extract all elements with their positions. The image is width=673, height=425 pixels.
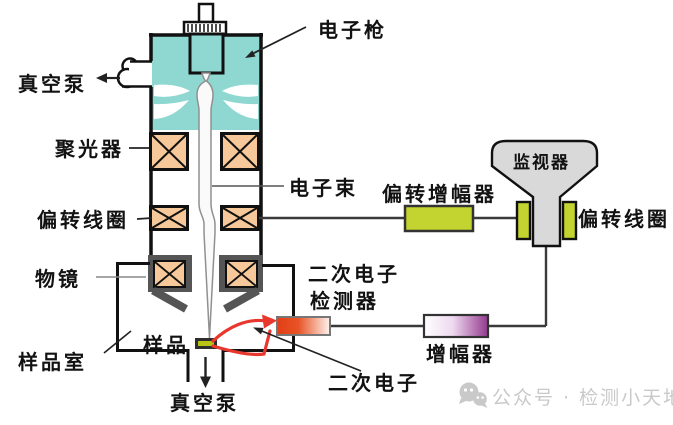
signal-wires xyxy=(259,218,546,326)
label-monitor: 监视器 xyxy=(513,152,570,173)
se-detector-box xyxy=(277,317,330,335)
sem-schematic-diagram: 电子枪 真空泵 聚光器 电子束 偏转线圈 物镜 样品 样品室 真空泵 二次电子 … xyxy=(0,0,673,425)
gun-connector xyxy=(184,22,226,34)
watermark: 公众号 · 检测小天地 xyxy=(459,383,673,410)
deflection-coil-leader xyxy=(137,218,152,219)
leader-lines xyxy=(96,148,284,353)
label-condenser: 聚光器 xyxy=(54,137,124,161)
red-arrowhead xyxy=(262,315,277,329)
pole-piece-left xyxy=(153,291,186,310)
crt-coil-left xyxy=(517,202,530,239)
label-deflection-coil-left: 偏转线圈 xyxy=(37,208,129,232)
label-se-detector-line2: 检测器 xyxy=(310,289,379,313)
cathode xyxy=(190,34,223,73)
watermark-text: 公众号 · 检测小天地 xyxy=(492,387,673,409)
label-electron-gun: 电子枪 xyxy=(318,18,387,42)
label-sample: 样品 xyxy=(143,333,189,357)
pipe-body xyxy=(129,62,152,86)
label-se-detector-line1: 二次电子 xyxy=(308,262,400,286)
amplifier-box xyxy=(424,315,488,337)
label-sample-chamber: 样品室 xyxy=(18,350,87,374)
label-secondary-electron: 二次电子 xyxy=(328,371,420,395)
deflection-amplifier-box xyxy=(405,206,473,231)
label-amplifier: 增幅器 xyxy=(426,342,495,366)
label-deflection-amplifier: 偏转增幅器 xyxy=(382,182,497,206)
crt-coil-right xyxy=(563,202,576,239)
label-objective-lens: 物镜 xyxy=(35,267,81,291)
vacuum-pipe xyxy=(118,59,152,88)
label-electron-beam: 电子束 xyxy=(289,176,358,200)
wechat-icon xyxy=(459,383,488,409)
diagram-svg: 电子枪 真空泵 聚光器 电子束 偏转线圈 物镜 样品 样品室 真空泵 二次电子 … xyxy=(0,0,673,425)
pole-piece-right xyxy=(225,291,258,310)
label-vacuum-pump-bottom: 真空泵 xyxy=(170,391,239,415)
label-vacuum-pump-top: 真空泵 xyxy=(18,72,87,96)
secondary-electron-trajectory xyxy=(213,315,277,355)
gun-terminal xyxy=(199,4,213,22)
label-deflection-coil-right: 偏转线圈 xyxy=(578,207,670,231)
